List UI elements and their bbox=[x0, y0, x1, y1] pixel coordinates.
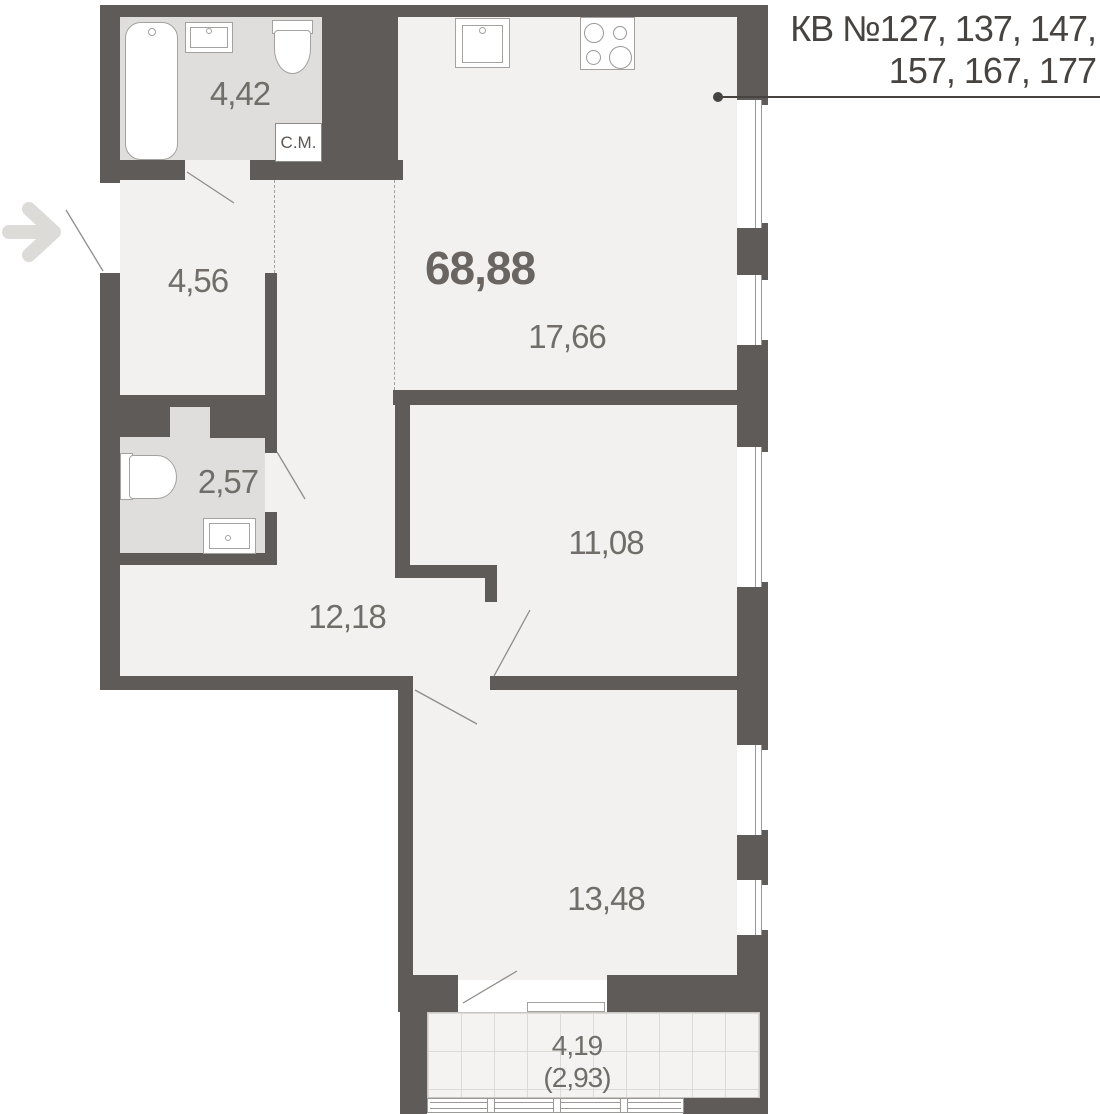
stove-burner bbox=[609, 46, 632, 69]
wall-balcony-corner bbox=[683, 1098, 768, 1114]
wc-vent-block-a bbox=[120, 407, 170, 437]
wc-vent-block-b bbox=[210, 407, 265, 438]
stove-burner bbox=[586, 50, 601, 65]
wall-kitchen-room11 bbox=[393, 390, 737, 405]
wall-bathroom-bottom-left bbox=[100, 160, 185, 180]
window-frame-line bbox=[755, 447, 756, 587]
wall-left-upper bbox=[100, 5, 120, 183]
glazing-divider bbox=[553, 1099, 561, 1112]
wall-room11-left bbox=[395, 405, 410, 567]
corridor-area-label: 12,18 bbox=[308, 598, 386, 636]
window-frame-line bbox=[755, 745, 756, 835]
open-boundary-dashed-kitchen bbox=[394, 180, 395, 390]
wall-right-seg1 bbox=[737, 5, 768, 100]
kitchen-sink-tap bbox=[479, 27, 486, 34]
entrance-arrow-icon bbox=[9, 209, 54, 255]
wall-bathroom-bottom-right bbox=[250, 160, 403, 180]
window-frame-line bbox=[755, 100, 756, 228]
wall-room13-left bbox=[398, 690, 413, 980]
wall-wc-right-upper bbox=[265, 395, 277, 453]
wc-sink-tap bbox=[225, 535, 231, 541]
wall-room11-lower bbox=[395, 565, 497, 578]
washing-machine-label: С.М. bbox=[281, 133, 317, 153]
window-room13-2 bbox=[737, 880, 768, 935]
wall-right-seg5 bbox=[737, 835, 768, 880]
wall-wc-top bbox=[120, 395, 277, 407]
hallway-area-label: 4,56 bbox=[168, 262, 228, 300]
floor-plan: С.М. bbox=[0, 0, 1100, 1114]
apartment-title: КВ №127, 137, 147, 157, 167, 177 bbox=[790, 8, 1096, 93]
wall-right-seg6 bbox=[737, 935, 768, 1012]
stove bbox=[580, 17, 635, 70]
wall-top bbox=[100, 5, 768, 17]
bathroom-area-label: 4,42 bbox=[210, 75, 270, 113]
bathroom-sink-tap bbox=[206, 28, 212, 34]
window-frame-line bbox=[761, 275, 762, 345]
room11-area-label: 11,08 bbox=[568, 524, 643, 562]
glazing-divider bbox=[487, 1099, 495, 1112]
window-kitchen-2 bbox=[737, 275, 768, 345]
floor-room-13 bbox=[413, 690, 737, 980]
window-frame-line bbox=[761, 100, 762, 228]
window-frame-line bbox=[761, 745, 762, 835]
kitchen-area-label: 17,66 bbox=[528, 318, 606, 356]
wall-wc-bottom bbox=[120, 553, 277, 565]
wall-room11-bottom bbox=[490, 676, 737, 690]
washing-machine: С.М. bbox=[275, 123, 322, 162]
wc-toilet-bowl bbox=[129, 455, 177, 499]
balcony-door-sill bbox=[527, 1002, 605, 1012]
wall-room13-bottom-left bbox=[398, 975, 458, 1012]
apartment-title-line2: 157, 167, 177 bbox=[790, 50, 1096, 92]
glazing-divider bbox=[620, 1099, 628, 1112]
window-frame-line bbox=[755, 275, 756, 345]
bathtub bbox=[125, 22, 178, 160]
stove-burner bbox=[613, 26, 627, 40]
wall-right-seg3 bbox=[737, 345, 768, 447]
balcony-glazing bbox=[427, 1098, 684, 1113]
window-room11 bbox=[737, 447, 768, 587]
wall-left-lower bbox=[100, 273, 120, 690]
window-room13-1 bbox=[737, 745, 768, 835]
wall-hallway-right bbox=[265, 273, 277, 395]
wall-corridor-bottom bbox=[100, 676, 413, 690]
window-frame-line bbox=[755, 880, 756, 935]
window-frame-line bbox=[761, 447, 762, 587]
window-frame-line bbox=[761, 880, 762, 935]
wall-right-seg4 bbox=[737, 587, 768, 745]
open-boundary-dashed-left bbox=[274, 180, 275, 273]
bathtub-drain bbox=[148, 28, 156, 36]
balcony-coefficient-label: (2,93) bbox=[543, 1062, 610, 1094]
stove-burner bbox=[584, 23, 604, 43]
apartment-title-line1: КВ №127, 137, 147, bbox=[790, 8, 1096, 50]
total-area-label: 68,88 bbox=[425, 241, 535, 295]
entrance-door-swing bbox=[66, 210, 103, 271]
wc-area-label: 2,57 bbox=[198, 463, 258, 501]
duct-block bbox=[322, 17, 398, 162]
wall-right-seg2 bbox=[737, 228, 768, 275]
wall-balcony-right bbox=[760, 1012, 768, 1098]
window-kitchen-1 bbox=[737, 100, 768, 228]
room13-area-label: 13,48 bbox=[567, 880, 645, 918]
wall-room13-bottom-right bbox=[607, 975, 737, 1012]
balcony-area-label: 4,19 bbox=[552, 1030, 603, 1062]
wall-room11-door-jamb bbox=[485, 578, 497, 602]
